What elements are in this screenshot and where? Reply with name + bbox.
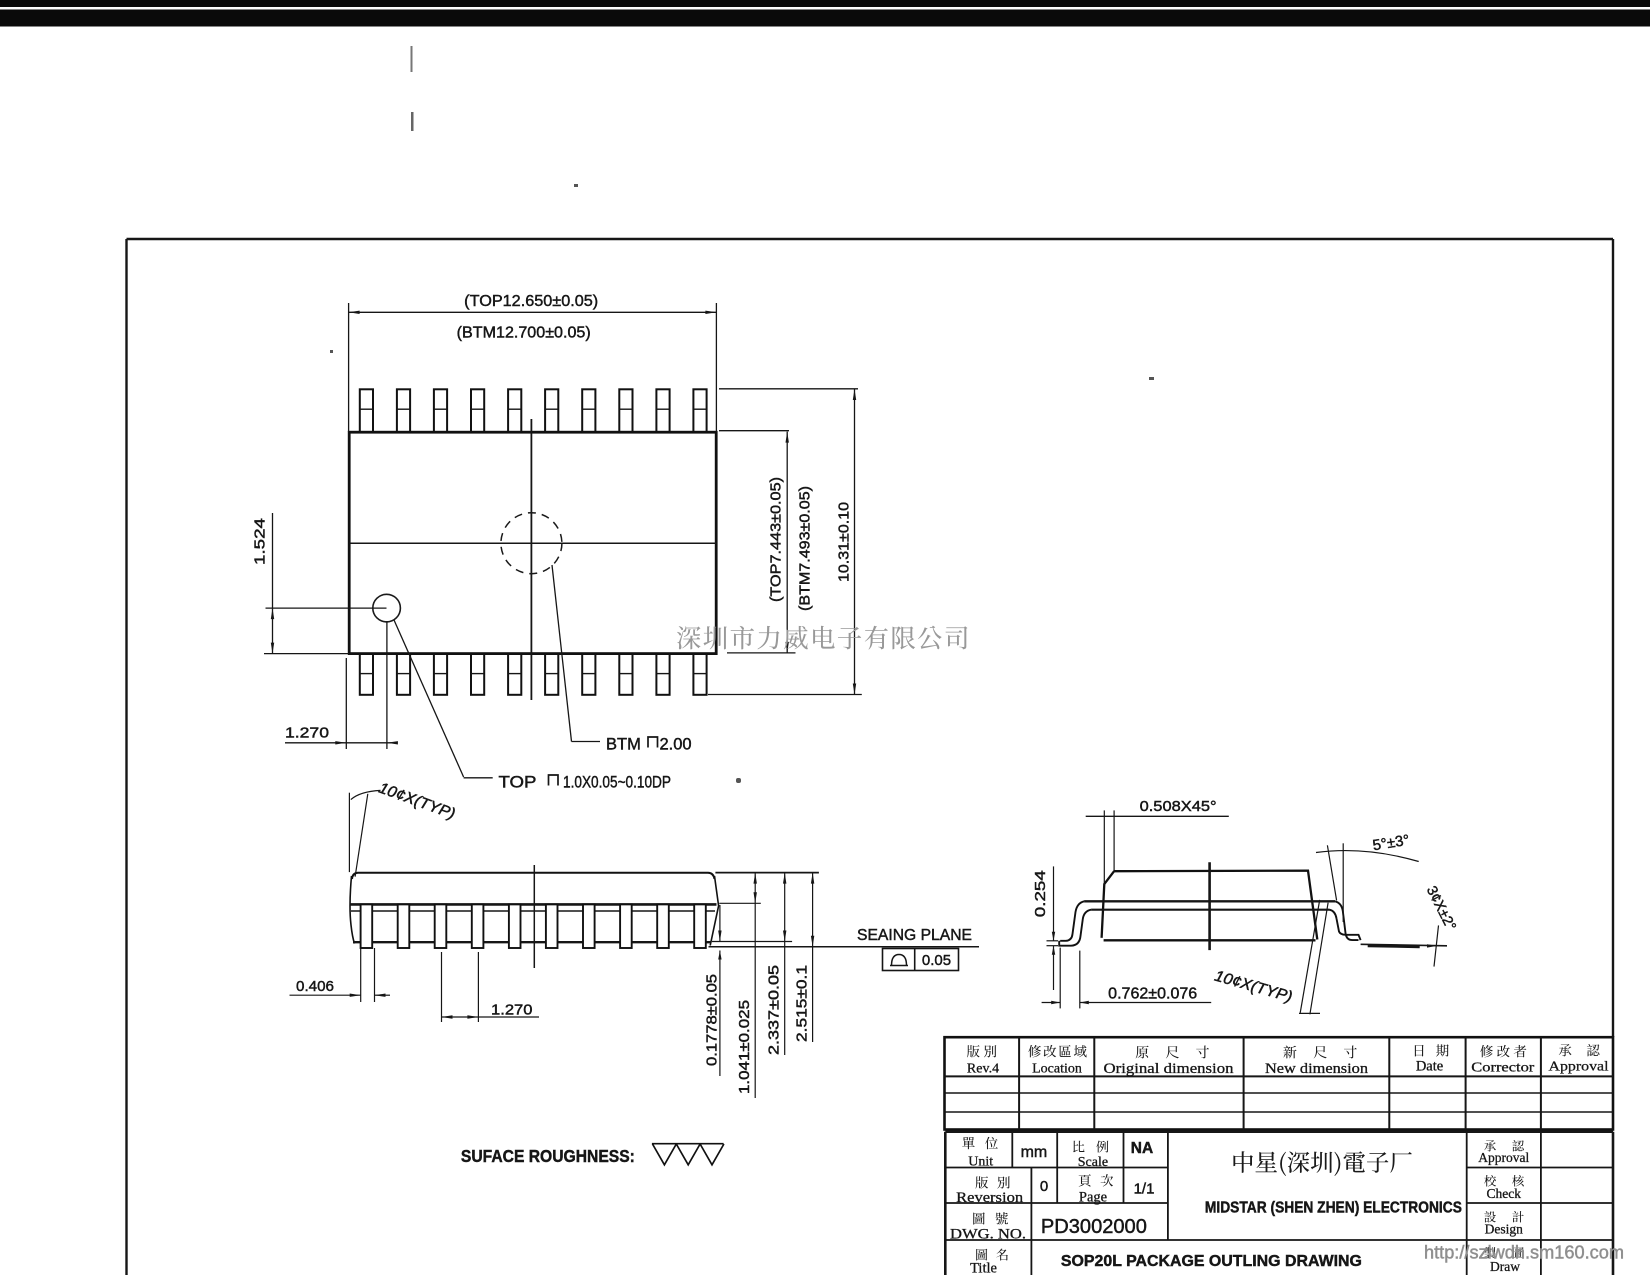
svg-text:(TOP7.443±0.05): (TOP7.443±0.05) [768, 477, 785, 602]
svg-text:0.1778±0.05: 0.1778±0.05 [705, 974, 721, 1066]
svg-text:(BTM12.700±0.05): (BTM12.700±0.05) [457, 324, 591, 341]
svg-text:DWG. NO.: DWG. NO. [950, 1227, 1026, 1243]
svg-text:Location: Location [1032, 1062, 1082, 1077]
svg-text:5°±3°: 5°±3° [1372, 832, 1411, 855]
svg-text:Corrector: Corrector [1471, 1061, 1534, 1076]
svg-text:0.762±0.076: 0.762±0.076 [1108, 986, 1197, 1003]
svg-text:Check: Check [1487, 1186, 1522, 1201]
svg-text:Design: Design [1485, 1222, 1523, 1237]
svg-text:Approval: Approval [1549, 1060, 1609, 1075]
svg-text:SUFACE ROUGHNESS:: SUFACE ROUGHNESS: [461, 1146, 635, 1166]
svg-text:NA: NA [1131, 1140, 1153, 1157]
svg-text:3¢X±2°: 3¢X±2° [1423, 884, 1459, 934]
svg-text:1.0X0.05~0.10DP: 1.0X0.05~0.10DP [563, 773, 671, 791]
svg-text:2.00: 2.00 [660, 736, 692, 754]
svg-text:Approval: Approval [1478, 1150, 1529, 1165]
svg-text:10¢X(TYP): 10¢X(TYP) [376, 780, 457, 823]
svg-text:Rev.4: Rev.4 [967, 1062, 999, 1077]
svg-text:10¢X(TYP): 10¢X(TYP) [1213, 968, 1295, 1006]
svg-text:(TOP12.650±0.05): (TOP12.650±0.05) [464, 293, 598, 310]
svg-text:1.041±0.025: 1.041±0.025 [737, 1000, 753, 1094]
svg-text:Original dimension: Original dimension [1104, 1061, 1235, 1077]
svg-text:1.270: 1.270 [491, 1002, 533, 1019]
svg-text:10.31±0.10: 10.31±0.10 [836, 502, 853, 582]
svg-text:1.270: 1.270 [285, 725, 329, 742]
svg-text:SEAING PLANE: SEAING PLANE [857, 927, 972, 944]
svg-text:Reversion: Reversion [956, 1190, 1024, 1206]
svg-text:1/1: 1/1 [1134, 1181, 1155, 1198]
svg-text:0.254: 0.254 [1032, 870, 1049, 917]
svg-text:2.337±0.05: 2.337±0.05 [767, 965, 783, 1055]
svg-text:mm: mm [1021, 1144, 1048, 1161]
svg-text:PD3002000: PD3002000 [1041, 1216, 1147, 1238]
svg-text:Page: Page [1079, 1190, 1107, 1206]
svg-text:BTM: BTM [606, 736, 641, 754]
svg-text:Unit: Unit [968, 1155, 993, 1170]
svg-text:New dimension: New dimension [1265, 1061, 1369, 1077]
svg-text:0.406: 0.406 [296, 979, 334, 995]
svg-text:MIDSTAR (SHEN ZHEN) ELECTRONIC: MIDSTAR (SHEN ZHEN) ELECTRONICS [1205, 1200, 1462, 1217]
svg-text:0: 0 [1040, 1178, 1048, 1195]
svg-text:1.524: 1.524 [252, 518, 269, 565]
svg-text:SOP20L PACKAGE OUTLING DRAWING: SOP20L PACKAGE OUTLING DRAWING [1061, 1253, 1362, 1270]
svg-text:(BTM7.493±0.05): (BTM7.493±0.05) [797, 486, 814, 611]
svg-text:Scale: Scale [1078, 1155, 1108, 1170]
svg-text:http://szlwdh.sm160.com: http://szlwdh.sm160.com [1424, 1243, 1624, 1263]
svg-text:TOP: TOP [499, 773, 537, 791]
svg-text:Date: Date [1416, 1059, 1443, 1075]
svg-text:2.515±0.1: 2.515±0.1 [795, 965, 811, 1042]
svg-text:0.05: 0.05 [922, 952, 951, 969]
svg-text:Title: Title [970, 1261, 997, 1275]
svg-text:0.508X45°: 0.508X45° [1140, 798, 1217, 815]
